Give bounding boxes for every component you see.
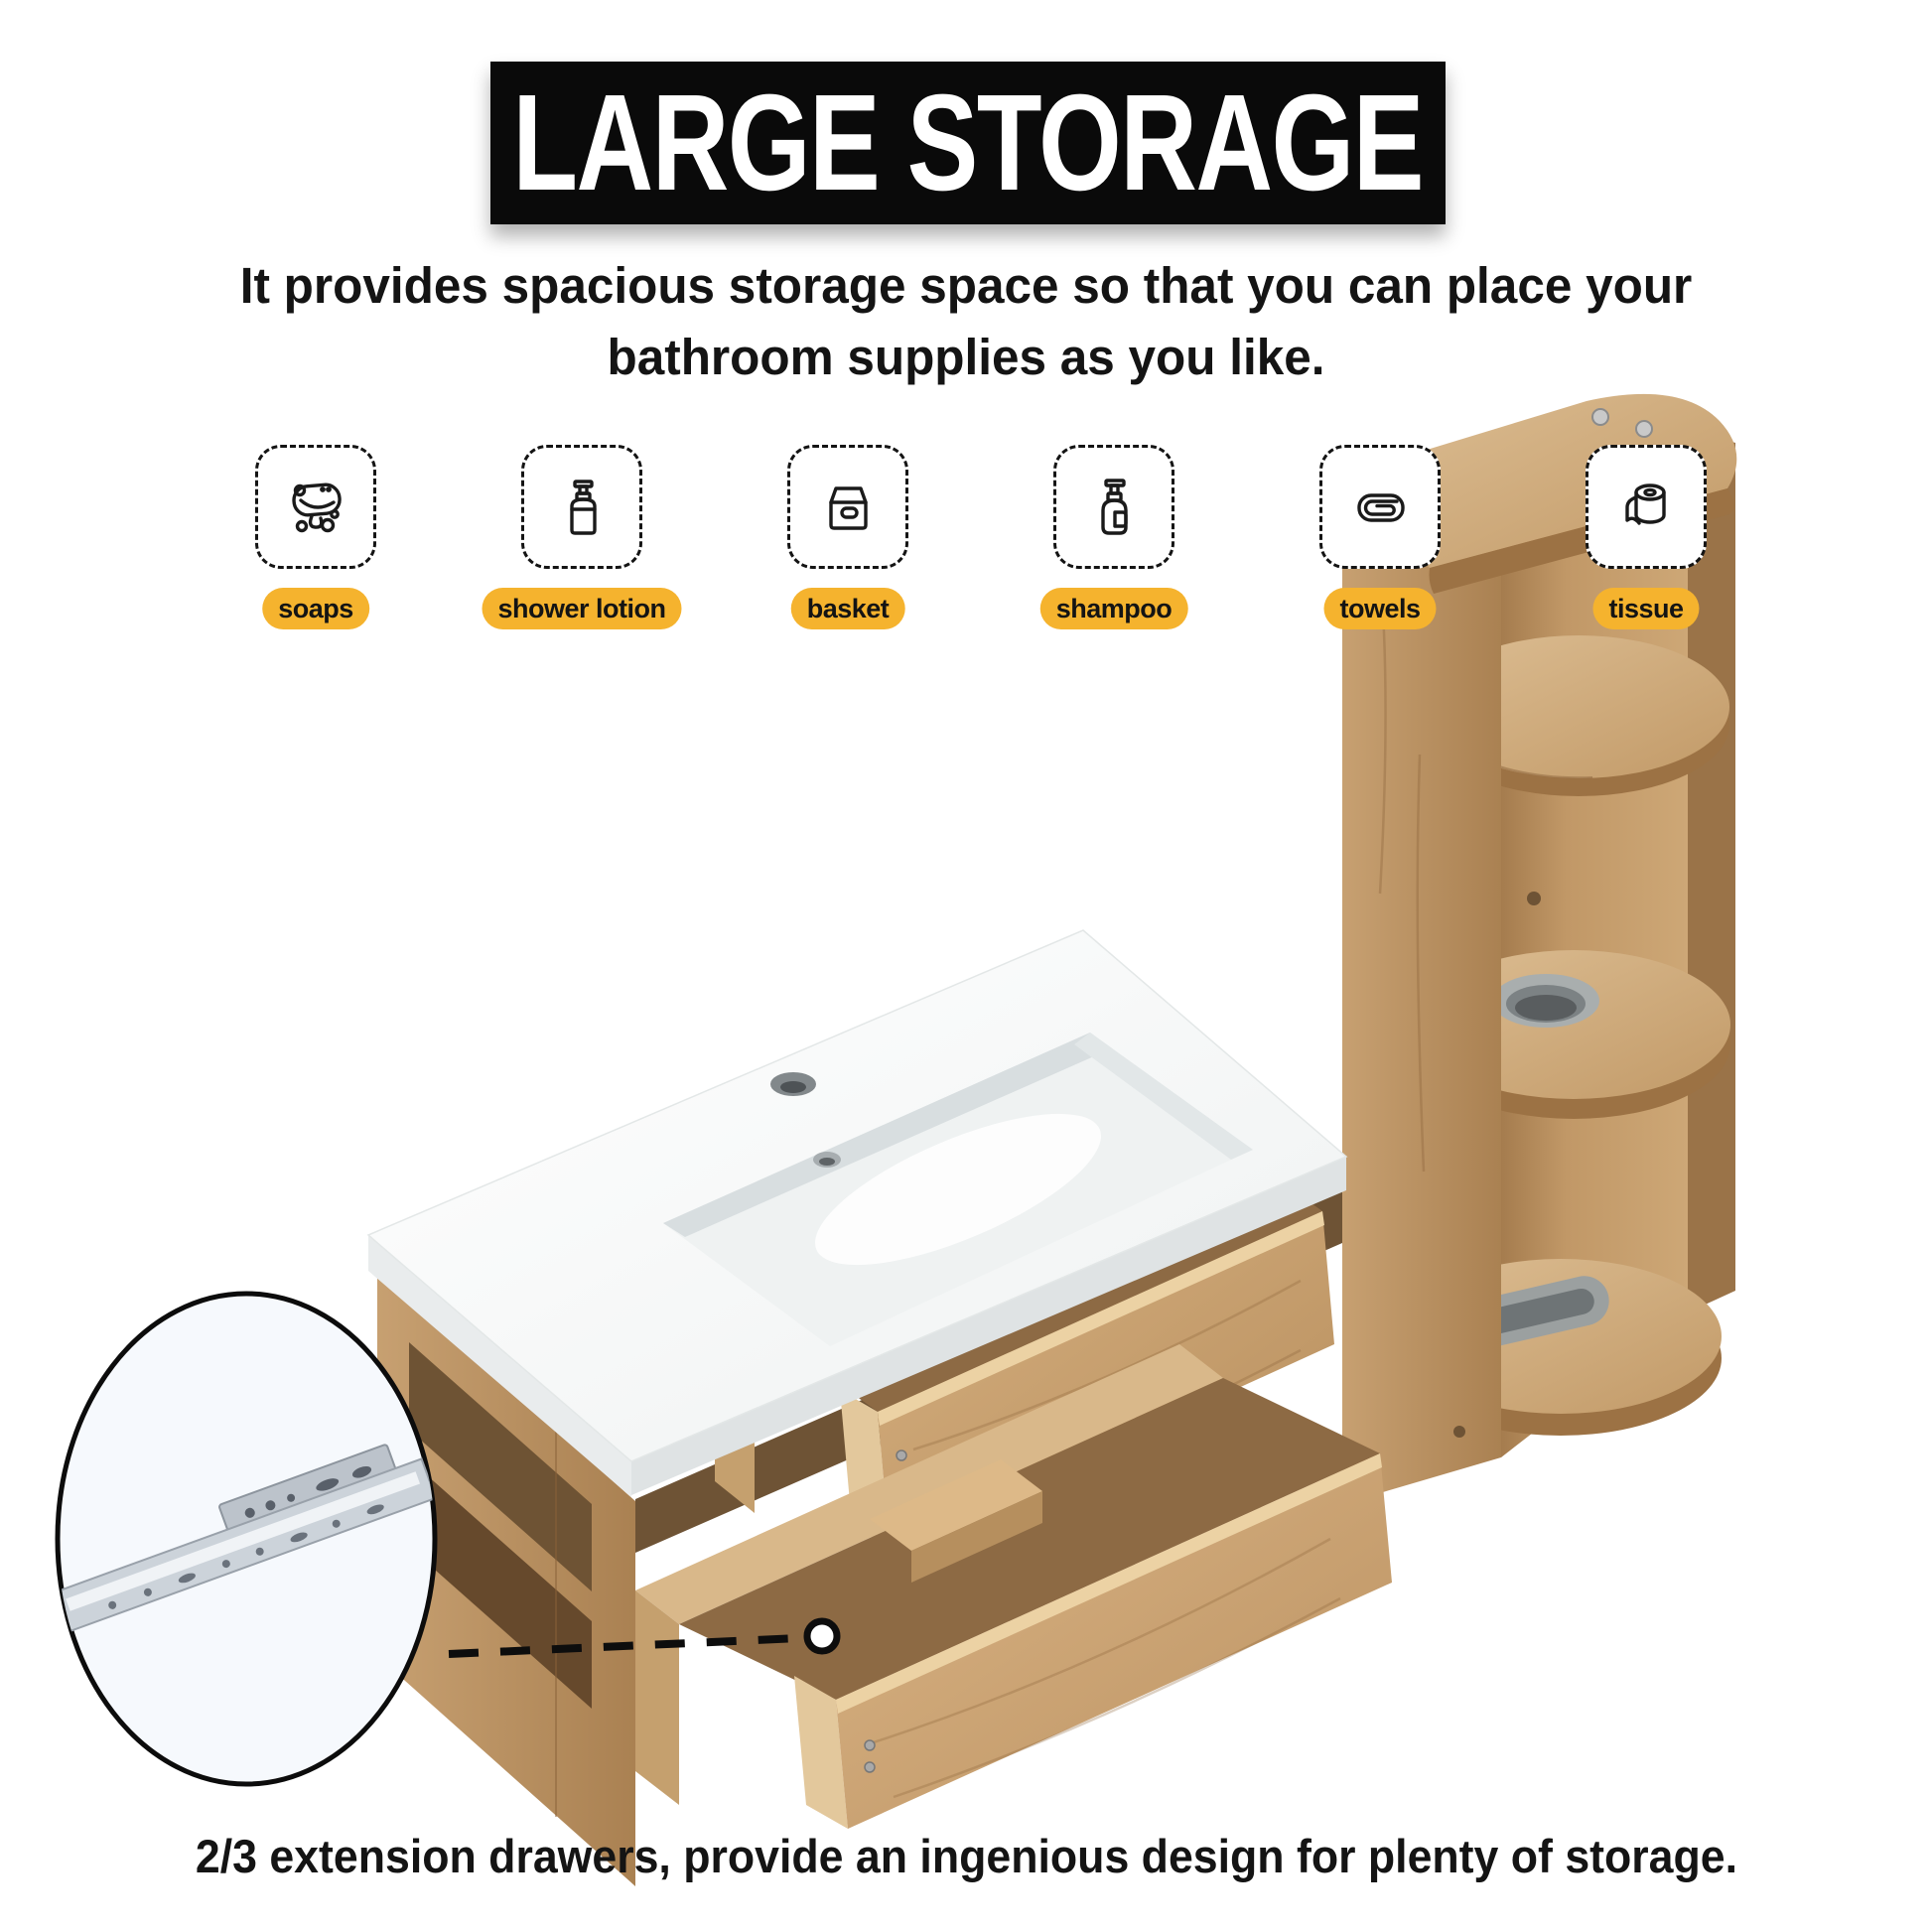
banner-title: LARGE STORAGE: [513, 65, 1424, 222]
feature-label: basket: [791, 588, 905, 629]
tissue-icon: [1586, 445, 1707, 569]
pointer-dot: [807, 1621, 837, 1651]
feature-label: soaps: [262, 588, 369, 629]
towel-icon: [1319, 445, 1441, 569]
banner: LARGE STORAGE: [490, 62, 1446, 224]
drawer-slide-inset: [26, 1294, 436, 1784]
feature-label: shower lotion: [483, 588, 682, 629]
shampoo-icon: [1053, 445, 1174, 569]
subtitle-line-2: bathroom supplies as you like.: [29, 322, 1903, 393]
shower-lotion-icon: [521, 445, 642, 569]
subtitle-line-1: It provides spacious storage space so th…: [29, 250, 1903, 322]
basket-icon: [787, 445, 908, 569]
subtitle: It provides spacious storage space so th…: [0, 250, 1932, 394]
vanity: [368, 930, 1392, 1886]
soap-icon: [255, 445, 376, 569]
feature-label: shampoo: [1040, 588, 1188, 629]
caption-text: 2/3 extension drawers, provide an ingeni…: [195, 1829, 1736, 1883]
caption: 2/3 extension drawers, provide an ingeni…: [0, 1829, 1932, 1883]
feature-label: tissue: [1592, 588, 1699, 629]
feature-label: towels: [1323, 588, 1436, 629]
